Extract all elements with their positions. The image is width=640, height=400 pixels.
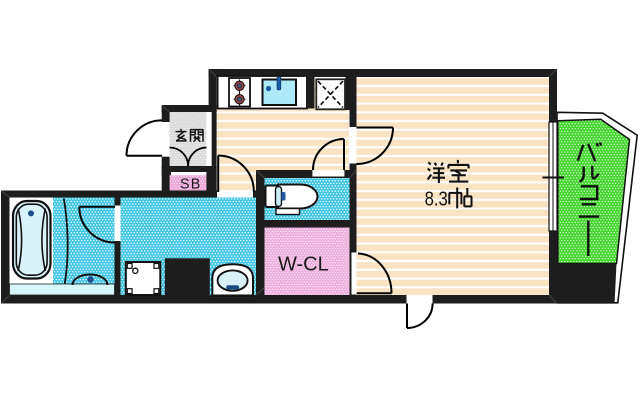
svg-text:8.3: 8.3 bbox=[425, 188, 448, 210]
svg-text:W-CL: W-CL bbox=[278, 253, 329, 275]
svg-text:SB: SB bbox=[180, 176, 201, 192]
